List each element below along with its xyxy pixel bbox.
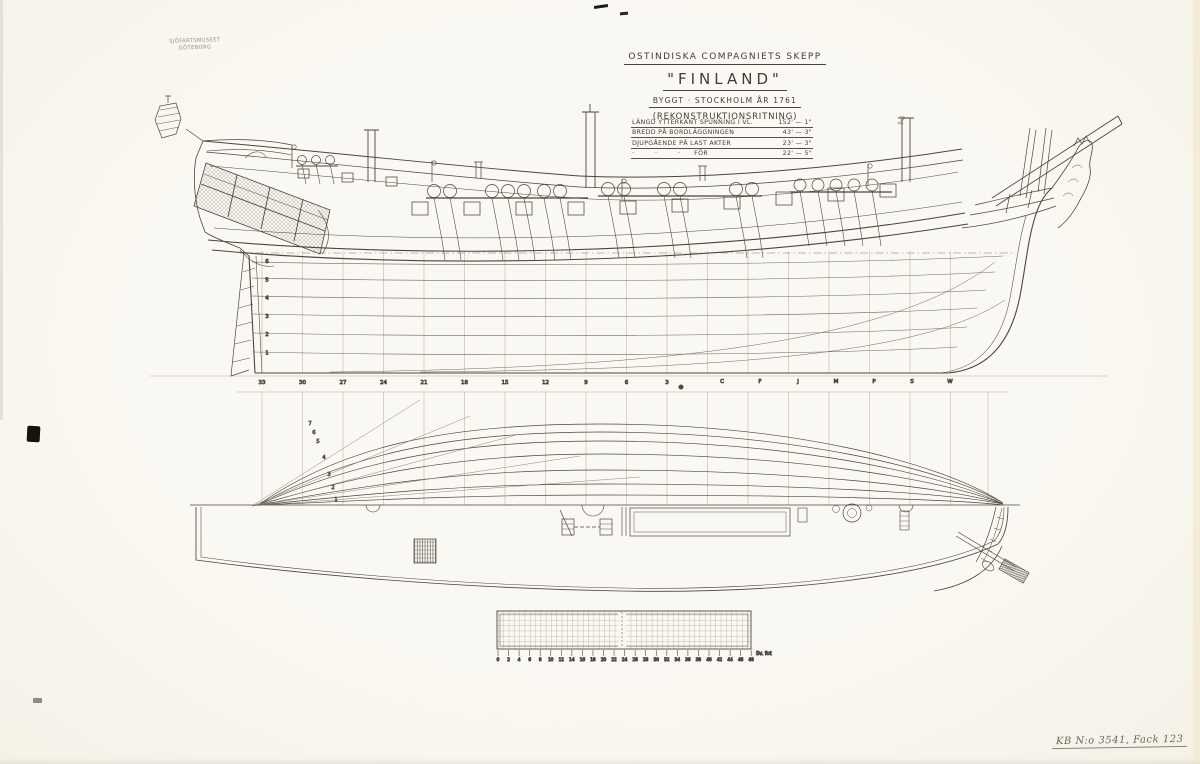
grid-label: 1 — [334, 497, 338, 503]
grid-label: 4 — [518, 657, 521, 662]
grid-label: 26 — [632, 657, 638, 662]
deadeye — [298, 156, 307, 165]
gun-port — [412, 202, 428, 215]
grid-line — [560, 198, 571, 260]
main-hatch — [630, 508, 790, 536]
deadeye — [674, 183, 687, 196]
profile-waterlines — [252, 256, 1005, 372]
grid-label: 38 — [696, 657, 702, 662]
fore-mast — [898, 118, 914, 182]
grid-line — [818, 191, 827, 246]
gun-port — [516, 202, 532, 215]
grid-label: 9 — [584, 380, 588, 386]
grid-label: C — [720, 379, 724, 385]
mast-partner-line — [622, 507, 626, 536]
deadeye — [502, 185, 515, 198]
deadeye — [830, 179, 842, 191]
grid-line — [854, 191, 863, 246]
gun-port — [620, 201, 636, 214]
grid-label: 48 — [749, 657, 755, 662]
grid-line — [302, 164, 306, 184]
grid-label: 22 — [611, 657, 617, 662]
grid-label: 2 — [331, 485, 335, 491]
grid-line — [330, 164, 334, 184]
scale-unit-label: Sv. fot — [756, 651, 772, 657]
grid-label: 0 — [497, 657, 500, 662]
grid-line — [450, 198, 461, 260]
grid-line — [664, 196, 675, 258]
grid-line — [624, 196, 635, 258]
grid-label: 30 — [299, 380, 306, 386]
grid-label: 18 — [590, 657, 596, 662]
grid-label: 7 — [308, 421, 312, 427]
grid-label: ⊗ — [678, 383, 683, 391]
grid-label: 27 — [340, 380, 347, 386]
grid-label: 15 — [502, 380, 509, 386]
deadeye — [326, 156, 335, 165]
grid-label: 10 — [548, 657, 554, 662]
grid-label: W — [947, 379, 953, 385]
grid-label: 28 — [643, 657, 649, 662]
stern-gallery — [194, 163, 330, 266]
grid-label: 44 — [727, 657, 733, 662]
sheer-rails — [203, 141, 963, 200]
archive-note: KB N:o 3541, Fack 123 — [1052, 734, 1188, 749]
gun-port — [672, 199, 688, 212]
gun-port — [342, 173, 353, 182]
scale-ticks — [498, 650, 751, 656]
grid-label: 12 — [559, 657, 565, 662]
rudder — [231, 252, 255, 376]
grid-label: 6 — [625, 380, 629, 386]
grid-label: 20 — [601, 657, 607, 662]
deadeye — [746, 183, 759, 196]
grid-label: M — [834, 379, 839, 385]
grid-label: 18 — [461, 380, 468, 386]
grid-label: 36 — [685, 657, 691, 662]
deadeye — [554, 185, 567, 198]
masts — [364, 104, 1122, 206]
profile-view: 3330272421181512963⊗CFJMPSW 654321 — [150, 96, 1122, 391]
grating-hatch — [414, 539, 436, 563]
grid-label: 12 — [542, 380, 549, 386]
grid-label: 4 — [265, 296, 269, 302]
grid-line — [316, 164, 320, 184]
grid-label: 34 — [675, 657, 681, 662]
main-mast-plan — [582, 505, 604, 516]
grid-label: 2 — [507, 657, 510, 662]
bitts-plan — [798, 508, 807, 522]
grid-label: 21 — [421, 380, 428, 386]
drawing-sheet: SJÖFARTSMUSEET GÖTEBORG OSTINDISKA COMPA… — [0, 0, 1200, 764]
capstan — [833, 504, 873, 522]
grid-label: 4 — [322, 455, 326, 461]
grid-label: 42 — [717, 657, 723, 662]
grid-label: 2 — [265, 332, 269, 338]
gun-port — [386, 177, 397, 186]
grid-label: 8 — [539, 657, 542, 662]
grid-label: 6 — [528, 657, 531, 662]
deadeye — [518, 185, 531, 198]
head-rails — [962, 128, 1056, 228]
grid-label: 24 — [622, 657, 628, 662]
profile-wl-labels: 654321 — [265, 259, 269, 357]
chainplates — [302, 164, 881, 260]
grid-label: J — [796, 379, 799, 385]
scale-tick-labels: 0246810121416182022242628303234363840424… — [497, 657, 755, 662]
deadeye — [848, 179, 860, 191]
grid-label: 40 — [706, 657, 712, 662]
deadeye — [658, 183, 671, 196]
plan-view: 7654321 — [190, 392, 1029, 591]
scale-bar: 0246810121416182022242628303234363840424… — [497, 611, 772, 662]
plan-waterline-curves — [258, 424, 1003, 505]
grid-label: S — [910, 379, 914, 385]
fore-fitting — [900, 511, 909, 530]
deadeye — [312, 156, 321, 165]
gun-port — [464, 202, 480, 215]
grid-label: 33 — [259, 380, 266, 386]
grid-label: 1 — [265, 351, 269, 357]
grid-label: 6 — [312, 430, 316, 436]
stern-lantern — [155, 96, 203, 141]
deck-plan — [196, 504, 1029, 591]
gun-port — [880, 184, 896, 197]
grid-line — [680, 196, 691, 258]
grid-label: 3 — [327, 472, 331, 478]
grid-label: 5 — [265, 277, 269, 283]
windlass — [560, 510, 612, 536]
main-mast — [582, 104, 599, 188]
grid-label: 16 — [580, 657, 586, 662]
grid-label: 24 — [380, 380, 387, 386]
grid-label: 32 — [664, 657, 670, 662]
grid-label: P — [872, 379, 876, 385]
grid-label: F — [758, 379, 761, 385]
bow-plan — [934, 507, 1029, 591]
grid-label: 3 — [265, 314, 269, 320]
grid-line — [800, 191, 809, 246]
gun-port — [568, 202, 584, 215]
grid-label: 46 — [738, 657, 744, 662]
grid-label: 30 — [654, 657, 660, 662]
deadeye — [602, 183, 615, 196]
stern-diagonals — [252, 400, 640, 506]
figurehead-lion — [1052, 136, 1092, 228]
deadeye — [730, 183, 743, 196]
bowsprit — [992, 116, 1122, 206]
station-labels: 3330272421181512963⊗CFJMPSW — [259, 379, 954, 391]
deadeye — [812, 179, 824, 191]
deadeye — [794, 179, 806, 191]
grid-label: 14 — [569, 657, 575, 662]
gun-port — [828, 188, 844, 201]
grid-label: 3 — [665, 380, 669, 386]
plan-wl-labels: 7654321 — [308, 421, 338, 503]
grid-label: 6 — [265, 259, 269, 265]
mizzen-mast — [364, 130, 379, 182]
ship-plan-drawing: 3330272421181512963⊗CFJMPSW 654321 76543… — [0, 0, 1200, 764]
mizzen-mast-plan — [366, 505, 380, 512]
deadeye — [618, 183, 631, 196]
grid-line — [736, 196, 747, 258]
deadeye — [444, 185, 457, 198]
grid-label: 5 — [316, 439, 320, 445]
